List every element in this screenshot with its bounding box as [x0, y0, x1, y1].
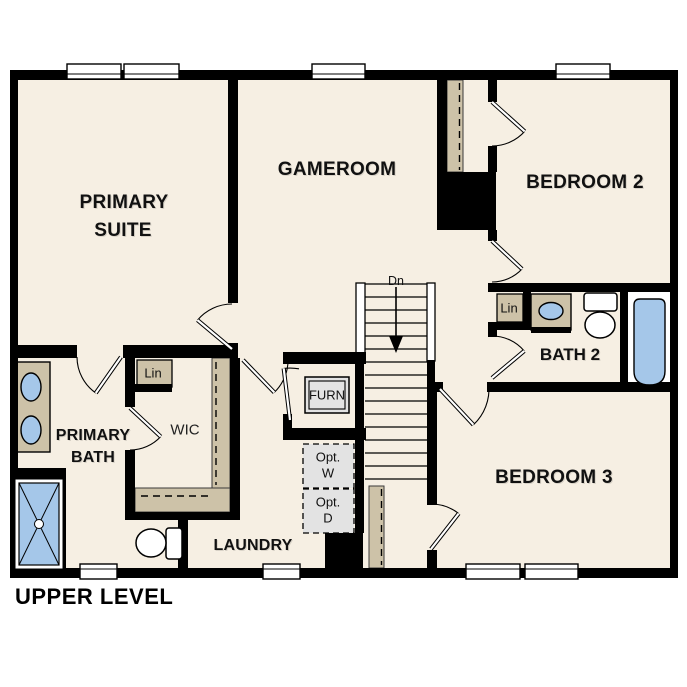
room-label-laundry: LAUNDRY — [213, 537, 292, 555]
label-linen-bath2: Lin — [500, 301, 517, 316]
floor-plan: PRIMARY SUITE GAMEROOM BEDROOM 2 BATH 2 … — [0, 0, 687, 687]
label-stairs-dn: Dn — [388, 274, 404, 288]
label-opt-dryer-line2: D — [323, 511, 332, 526]
room-label-gameroom: GAMEROOM — [278, 159, 397, 181]
bathtub — [628, 292, 670, 385]
label-opt-washer-line2: W — [322, 466, 334, 481]
sink — [539, 303, 563, 320]
room-label-bedroom2: BEDROOM 2 — [526, 172, 644, 194]
room-label-bath2: BATH 2 — [540, 345, 600, 365]
shower — [12, 476, 66, 572]
label-linen-wic: Lin — [144, 366, 161, 381]
room-label-primary-suite-line2: SUITE — [94, 220, 151, 242]
room-label-primary-bath-line1: PRIMARY — [56, 427, 131, 445]
toilet — [136, 528, 182, 559]
room-label-primary-bath-line2: BATH — [71, 449, 115, 467]
label-furnace: FURN — [309, 388, 345, 403]
room-label-primary-suite-line1: PRIMARY — [79, 192, 168, 214]
label-opt-washer-line1: Opt. — [316, 450, 341, 465]
room-label-bedroom3: BEDROOM 3 — [495, 467, 613, 489]
sink — [21, 373, 41, 401]
sink — [21, 416, 41, 444]
plan-title: UPPER LEVEL — [15, 584, 173, 610]
label-opt-dryer-line1: Opt. — [316, 495, 341, 510]
room-label-wic: WIC — [170, 422, 199, 439]
